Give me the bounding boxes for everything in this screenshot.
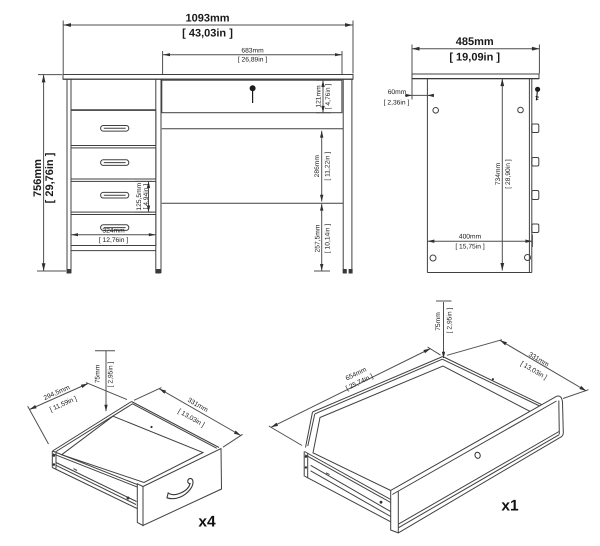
svg-text:[ 15,75in ]: [ 15,75in ] (455, 244, 485, 251)
svg-text:[ 11,22in ]: [ 11,22in ] (325, 152, 332, 181)
svg-text:[ 28,90in ]: [ 28,90in ] (505, 159, 512, 189)
svg-text:[ 4,94in ]: [ 4,94in ] (143, 184, 150, 210)
svg-text:257,5mm: 257,5mm (314, 224, 321, 252)
svg-text:125,5mm: 125,5mm (136, 182, 143, 210)
svg-text:400mm: 400mm (459, 234, 482, 241)
svg-text:1093mm: 1093mm (185, 13, 229, 25)
svg-text:485mm: 485mm (456, 36, 494, 48)
svg-text:x1: x1 (501, 498, 519, 515)
svg-text:x4: x4 (198, 514, 216, 531)
svg-text:[ 2,95in ]: [ 2,95in ] (107, 362, 114, 388)
svg-text:[ 10,14in ]: [ 10,14in ] (324, 224, 331, 254)
svg-text:[ 26,89in ]: [ 26,89in ] (238, 57, 268, 64)
svg-text:[ 29,76in ]: [ 29,76in ] (44, 152, 56, 203)
svg-text:[ 12,76in ]: [ 12,76in ] (99, 237, 129, 244)
svg-text:683mm: 683mm (241, 48, 264, 55)
svg-text:[ 2,95in ]: [ 2,95in ] (446, 308, 453, 334)
svg-text:[ 43,03in ]: [ 43,03in ] (182, 28, 233, 40)
svg-text:60mm: 60mm (388, 89, 407, 96)
svg-text:756mm: 756mm (32, 159, 44, 197)
svg-text:286mm: 286mm (314, 155, 321, 178)
svg-text:121mm: 121mm (316, 85, 323, 108)
svg-text:324mm: 324mm (102, 228, 125, 235)
svg-text:734mm: 734mm (495, 162, 502, 185)
svg-text:[ 19,09in ]: [ 19,09in ] (449, 52, 500, 64)
svg-text:75mm: 75mm (435, 312, 442, 331)
svg-text:75mm: 75mm (95, 364, 102, 383)
svg-text:[ 4,76in ]: [ 4,76in ] (325, 84, 332, 110)
svg-text:[ 2,36in ]: [ 2,36in ] (384, 99, 410, 106)
